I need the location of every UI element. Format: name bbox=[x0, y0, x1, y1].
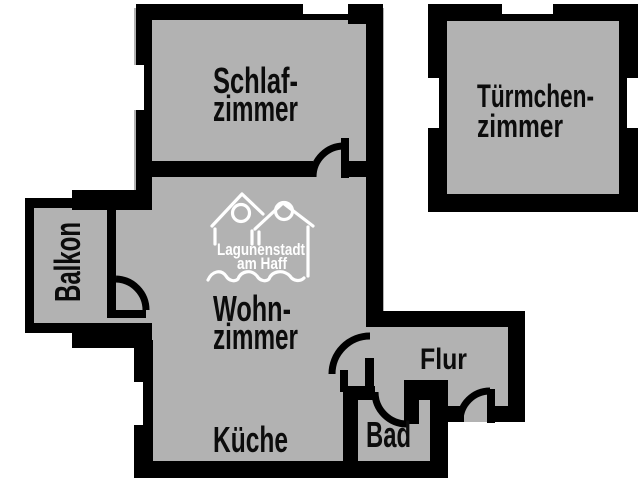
window-schlafzimmer-left bbox=[130, 65, 144, 110]
label-bad: Bad bbox=[366, 414, 411, 455]
door-leaf-schlafzimmer bbox=[341, 138, 349, 178]
logo-text-line2: am Haff bbox=[237, 254, 287, 273]
wall-kueche-bad-divider bbox=[343, 386, 358, 478]
window-kueche-left bbox=[128, 382, 143, 425]
railing-balkon-top bbox=[25, 198, 78, 208]
wall-flur-bottom-right bbox=[491, 406, 525, 422]
wall-flur-top bbox=[366, 311, 525, 327]
wall-stub-flur-door-end bbox=[340, 370, 348, 392]
railing-balkon-left bbox=[25, 198, 34, 333]
wall-tuermchen-bottom bbox=[428, 194, 638, 212]
window-schlafzimmer-top bbox=[303, 0, 348, 14]
wall-main-bottom bbox=[134, 461, 448, 478]
label-kueche: Küche bbox=[213, 419, 288, 460]
wall-main-right bbox=[366, 4, 383, 326]
door-leaf-balkon bbox=[107, 310, 146, 318]
window-tuermchen-top bbox=[502, 0, 553, 14]
railing-balkon-bottom bbox=[25, 323, 78, 333]
window-tuermchen-right bbox=[627, 78, 640, 128]
door-leaf-entrance bbox=[487, 389, 495, 423]
wall-flur-right bbox=[508, 311, 525, 422]
label-wohnzimmer-line2: zimmer bbox=[213, 316, 298, 357]
wall-schlafzimmer-divider-left bbox=[136, 161, 313, 177]
window-tuermchen-left bbox=[424, 78, 439, 128]
balcony-door-window-line bbox=[107, 205, 116, 318]
floor-plan: Lagunenstadt am Haff Schlaf- zimmer Türm… bbox=[0, 0, 640, 480]
label-tuermchenzimmer-line2: zimmer bbox=[477, 108, 563, 144]
label-schlafzimmer-line2: zimmer bbox=[213, 88, 298, 129]
label-balkon: Balkon bbox=[47, 222, 88, 302]
label-flur: Flur bbox=[420, 343, 467, 376]
wall-stub-flur-door-hinge bbox=[365, 358, 374, 392]
